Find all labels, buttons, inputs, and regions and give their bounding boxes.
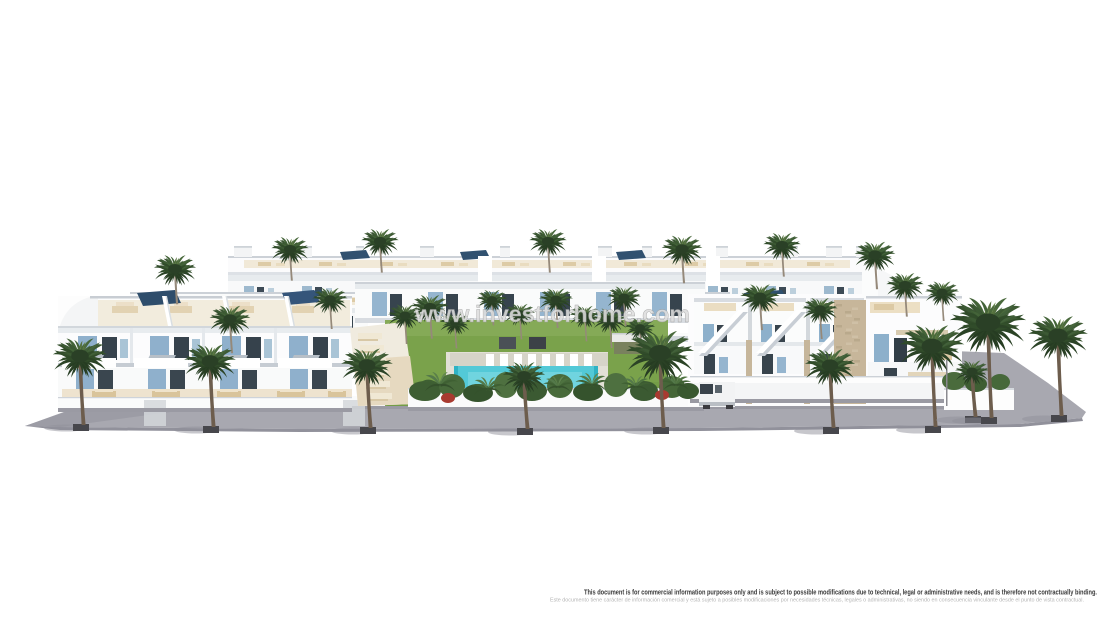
svg-text:www.investforhome.com: www.investforhome.com — [414, 301, 690, 327]
svg-text:Este documento tiene carácter: Este documento tiene carácter de informa… — [550, 598, 1084, 604]
svg-text:This document is for commercia: This document is for commercial informat… — [584, 588, 1097, 597]
